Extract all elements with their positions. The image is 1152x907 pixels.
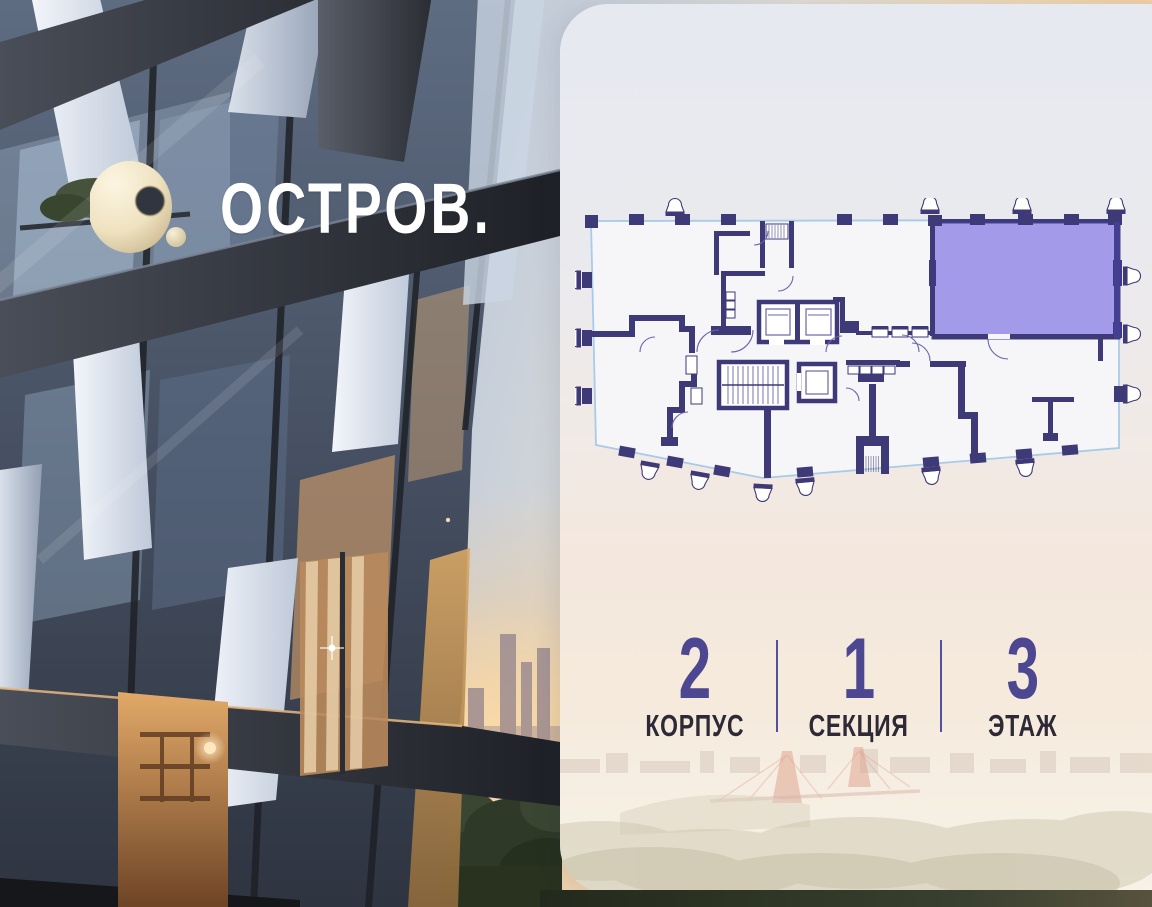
floorplan-highlighted-unit[interactable] bbox=[933, 222, 1119, 338]
logo-wordmark: ОСТРОВ. bbox=[220, 169, 492, 250]
info-card: 2 КОРПУС 1 СЕКЦИЯ 3 ЭТАЖ bbox=[560, 4, 1152, 893]
floorplan bbox=[575, 198, 1152, 505]
section-number: 1 bbox=[835, 634, 883, 702]
meta-item-floor: 3 ЭТАЖ bbox=[943, 634, 1103, 741]
brand-logo[interactable]: ОСТРОВ. bbox=[90, 160, 569, 258]
logo-mark-icon bbox=[90, 160, 190, 258]
unit-meta: 2 КОРПУС 1 СЕКЦИЯ 3 ЭТАЖ bbox=[615, 634, 1103, 741]
meta-divider bbox=[940, 640, 942, 732]
floor-number: 3 bbox=[999, 634, 1047, 702]
meta-item-section: 1 СЕКЦИЯ bbox=[779, 634, 939, 741]
page: ОСТРОВ. bbox=[0, 0, 1152, 907]
building-number: 2 bbox=[671, 634, 719, 702]
floor-label: ЭТАЖ bbox=[976, 711, 1069, 741]
section-label: СЕКЦИЯ bbox=[791, 711, 926, 741]
building-photo bbox=[0, 0, 562, 907]
meta-divider bbox=[776, 640, 778, 732]
building-label: КОРПУС bbox=[628, 711, 762, 741]
meta-item-building: 2 КОРПУС bbox=[615, 634, 775, 741]
treeline-strip bbox=[540, 890, 1152, 907]
card-scenery bbox=[560, 741, 1152, 893]
